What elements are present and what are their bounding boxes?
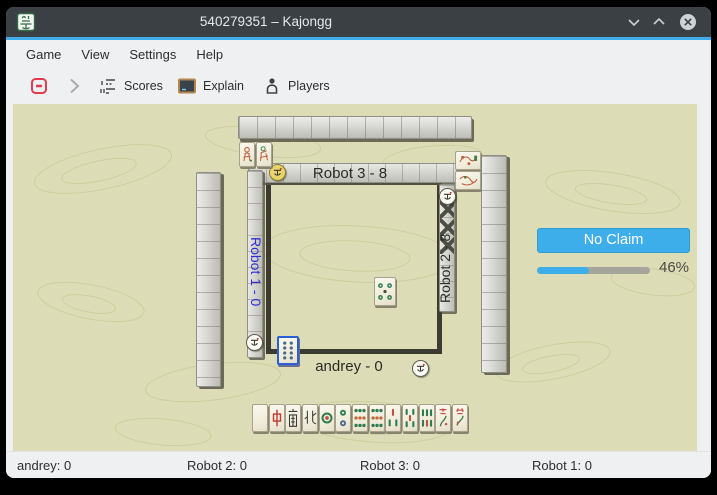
progress-fill <box>537 267 589 274</box>
andrey-name-label: andrey - 0 <box>299 358 399 375</box>
bonus-tile <box>455 171 481 190</box>
players-button[interactable]: Players <box>262 68 330 104</box>
status-andrey-score: andrey: 0 <box>17 452 71 478</box>
status-robot2-score: Robot 2: 0 <box>187 452 247 478</box>
hand-tile[interactable] <box>302 404 318 432</box>
maximize-button[interactable] <box>650 13 668 31</box>
wall-right <box>481 155 507 373</box>
window-title: 540279351 – Kajongg <box>156 7 376 37</box>
robot3-wind-disc <box>269 164 286 181</box>
discard-area-frame <box>266 180 442 354</box>
hand-tile[interactable] <box>402 404 418 432</box>
scores-button[interactable]: Scores <box>98 68 163 104</box>
menu-settings[interactable]: Settings <box>127 45 178 64</box>
titlebar[interactable]: 540279351 – Kajongg <box>6 7 711 37</box>
robot2-wind-disc <box>439 188 456 205</box>
bonus-tile <box>239 142 255 167</box>
menubar: Game View Settings Help <box>6 40 711 68</box>
hand-tile[interactable] <box>269 404 285 432</box>
no-claim-button[interactable]: No Claim <box>537 228 690 253</box>
discard-tile <box>374 277 396 306</box>
hand-tile[interactable] <box>319 404 335 432</box>
abort-game-button[interactable] <box>29 68 49 104</box>
robot2-name-label: Robot 2 - 8 <box>437 222 457 314</box>
status-robot3-score: Robot 3: 0 <box>360 452 420 478</box>
statusbar: andrey: 0 Robot 2: 0 Robot 3: 0 Robot 1:… <box>6 451 711 478</box>
andrey-hand <box>252 404 468 434</box>
app-window: 540279351 – Kajongg Game View Settings H… <box>6 7 711 478</box>
hand-tile[interactable] <box>285 404 301 432</box>
hand-tile[interactable] <box>385 404 401 432</box>
bonus-tile <box>455 151 481 170</box>
progress-percent-label: 46% <box>659 259 689 276</box>
robot3-name-label: Robot 3 - 8 <box>300 165 400 182</box>
hand-tile[interactable] <box>419 404 435 432</box>
close-button[interactable] <box>679 13 697 31</box>
status-robot1-score: Robot 1: 0 <box>532 452 592 478</box>
robot1-name-label: Robot 1 - 0 <box>246 204 264 339</box>
bonus-tile <box>256 142 272 167</box>
toolbar: Scores Explain Players <box>6 68 711 104</box>
claim-timeout-progressbar <box>537 267 650 274</box>
hand-tile[interactable] <box>369 404 385 432</box>
abort-game-icon <box>29 76 49 96</box>
menu-view[interactable]: View <box>79 45 111 64</box>
hand-tile[interactable] <box>335 404 351 432</box>
wall-left <box>196 172 221 387</box>
player-icon <box>262 76 282 96</box>
menu-help[interactable]: Help <box>194 45 225 64</box>
explain-button[interactable]: Explain <box>177 68 244 104</box>
wall-top <box>238 116 472 139</box>
hand-tile[interactable] <box>252 404 268 432</box>
blackboard-icon <box>177 76 197 96</box>
andrey-wind-disc <box>412 360 429 377</box>
kajongg-app-icon <box>16 12 36 32</box>
hand-tile[interactable] <box>435 404 451 432</box>
next-step-button[interactable] <box>64 68 84 104</box>
hand-tile[interactable] <box>352 404 368 432</box>
scores-label: Scores <box>124 79 163 93</box>
chevron-right-icon <box>64 76 84 96</box>
hand-tile[interactable] <box>452 404 468 432</box>
menu-game[interactable]: Game <box>24 45 63 64</box>
scores-icon <box>98 76 118 96</box>
robot1-wind-disc <box>246 334 263 351</box>
players-label: Players <box>288 79 330 93</box>
minimize-button[interactable] <box>625 13 643 31</box>
screenshot: { "window": { "title": "540279351 – Kajo… <box>0 0 717 495</box>
game-board: Robot 3 - 8 Robot 1 - 0 Robot 2 - 8 <box>13 104 697 451</box>
explain-label: Explain <box>203 79 244 93</box>
focused-tile[interactable] <box>277 336 299 365</box>
